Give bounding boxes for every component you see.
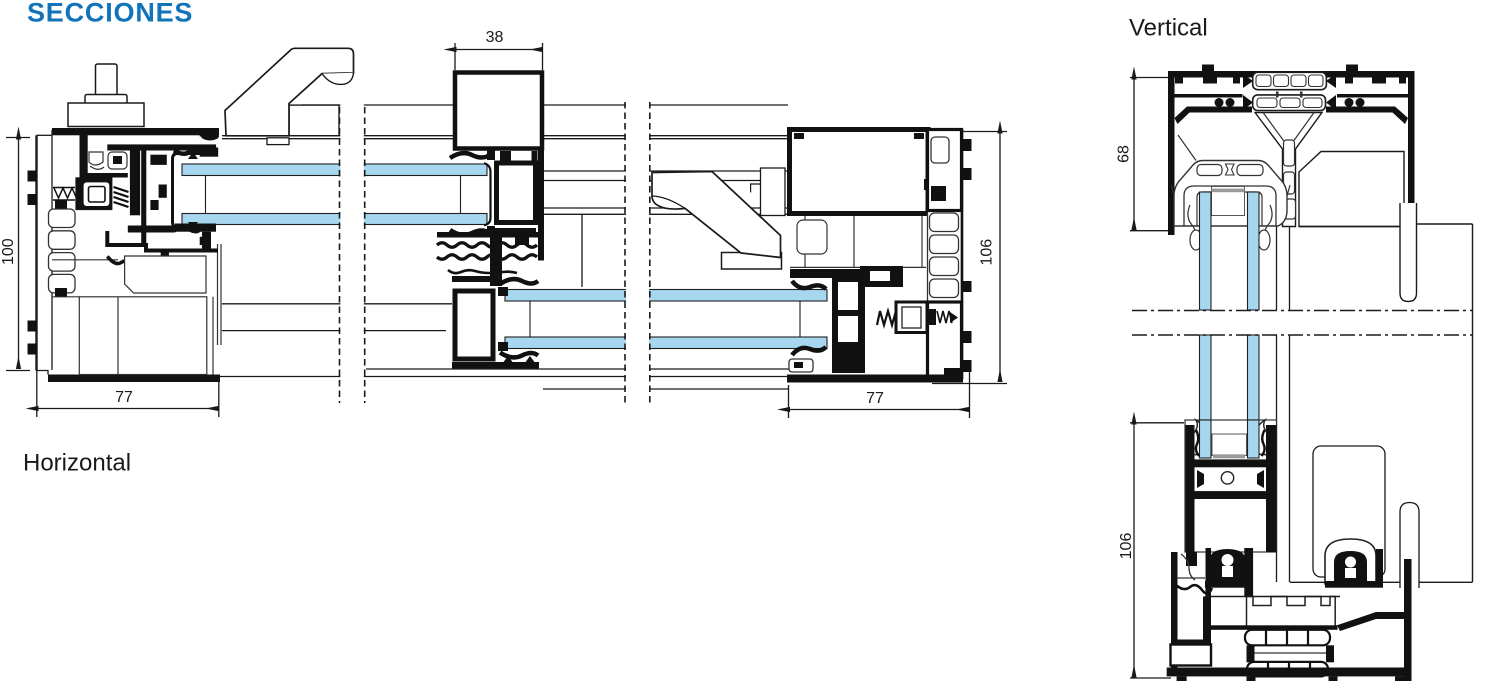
svg-text:106: 106 xyxy=(979,239,996,266)
svg-text:77: 77 xyxy=(866,390,884,407)
svg-text:100: 100 xyxy=(0,238,17,265)
svg-text:106: 106 xyxy=(1118,533,1135,560)
svg-text:SECCIONES: SECCIONES xyxy=(27,0,193,28)
svg-text:38: 38 xyxy=(486,29,504,46)
svg-text:Horizontal: Horizontal xyxy=(23,450,131,477)
svg-text:68: 68 xyxy=(1116,145,1133,163)
svg-text:Vertical: Vertical xyxy=(1129,15,1208,42)
svg-text:77: 77 xyxy=(115,389,133,406)
